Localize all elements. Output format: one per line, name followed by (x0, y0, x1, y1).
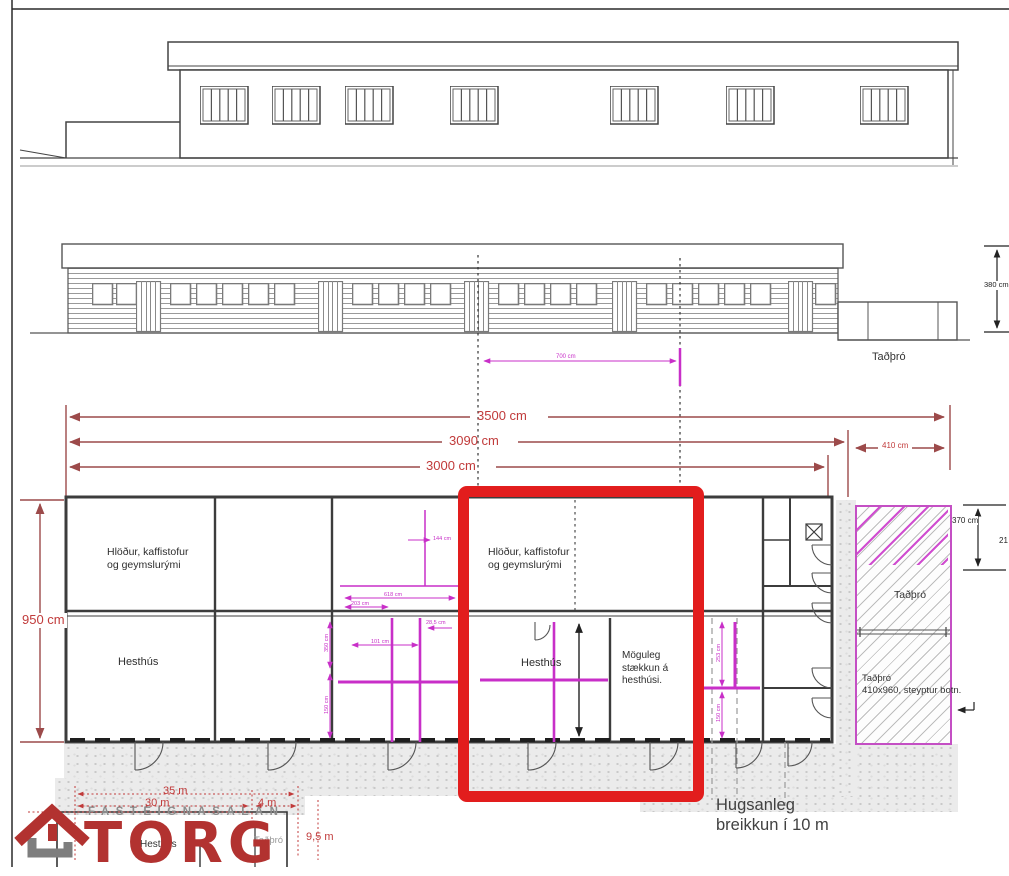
widening-annotation-line2: breikkun í 10 m (716, 816, 829, 836)
room-label-barn-left-line2: og geymslurými (107, 559, 189, 572)
tadbro-note: Taðþró 410x960, steyptur botn. (862, 673, 961, 697)
stall-dim-c: 618 cm (384, 592, 402, 598)
dim-building-width: 3000 cm (426, 459, 476, 474)
dim-tadbro-depth: 370 cm (952, 516, 978, 525)
dim-building-with-extension: 3090 cm (449, 434, 499, 449)
stall-dim-d: 203 cm (351, 601, 369, 607)
dim-tadbro-width: 410 cm (882, 441, 908, 450)
stall-dim-h: 253 cm (716, 644, 722, 662)
dim-total-width: 3500 cm (477, 409, 527, 424)
widening-annotation: Hugsanleg breikkun í 10 m (716, 796, 829, 835)
sketch-dim-95m: 9,5 m (306, 831, 334, 844)
dim-building-depth: 950 cm (20, 613, 67, 628)
tadbro-elevation-label: Taðþró (872, 351, 906, 364)
room-label-barn-left-line1: Hlöður, kaffistofur (107, 546, 189, 559)
room-label-stable-left: Hesthús (118, 656, 158, 669)
stall-dim-e: 101 cm (371, 639, 389, 645)
room-label-barn-left: Hlöður, kaffistofur og geymslurými (107, 546, 189, 572)
dim-front-height: 380 cm (984, 281, 1009, 290)
tadbro-note-line2: 410x960, steyptur botn. (862, 685, 961, 697)
stall-dim-i: 150 cm (716, 704, 722, 722)
widening-annotation-line1: Hugsanleg (716, 796, 829, 816)
torg-logo: FASTEIGNASALAN TORG (0, 795, 300, 867)
side-elevation (20, 42, 958, 166)
tadbro-plan-label: Taðþró (894, 589, 926, 601)
front-elevation (30, 244, 1009, 340)
blueprint-page: { "colors": { "dim_red_line": "#9c4a4a",… (0, 0, 1009, 867)
stall-dim-b: 150 cm (324, 696, 330, 714)
tadbro-note-line1: Taðþró (862, 673, 961, 685)
logo-name: TORG (84, 811, 279, 876)
stall-dim-a: 350 cm (324, 634, 330, 652)
dim-partial-right-edge: 21 (999, 536, 1008, 545)
stall-dim-g: 144 cm (433, 536, 451, 542)
stall-dim-f: 28,5 cm (426, 620, 446, 626)
front-extension-width-dim: 700 cm (556, 354, 576, 361)
highlight-box (458, 486, 704, 802)
